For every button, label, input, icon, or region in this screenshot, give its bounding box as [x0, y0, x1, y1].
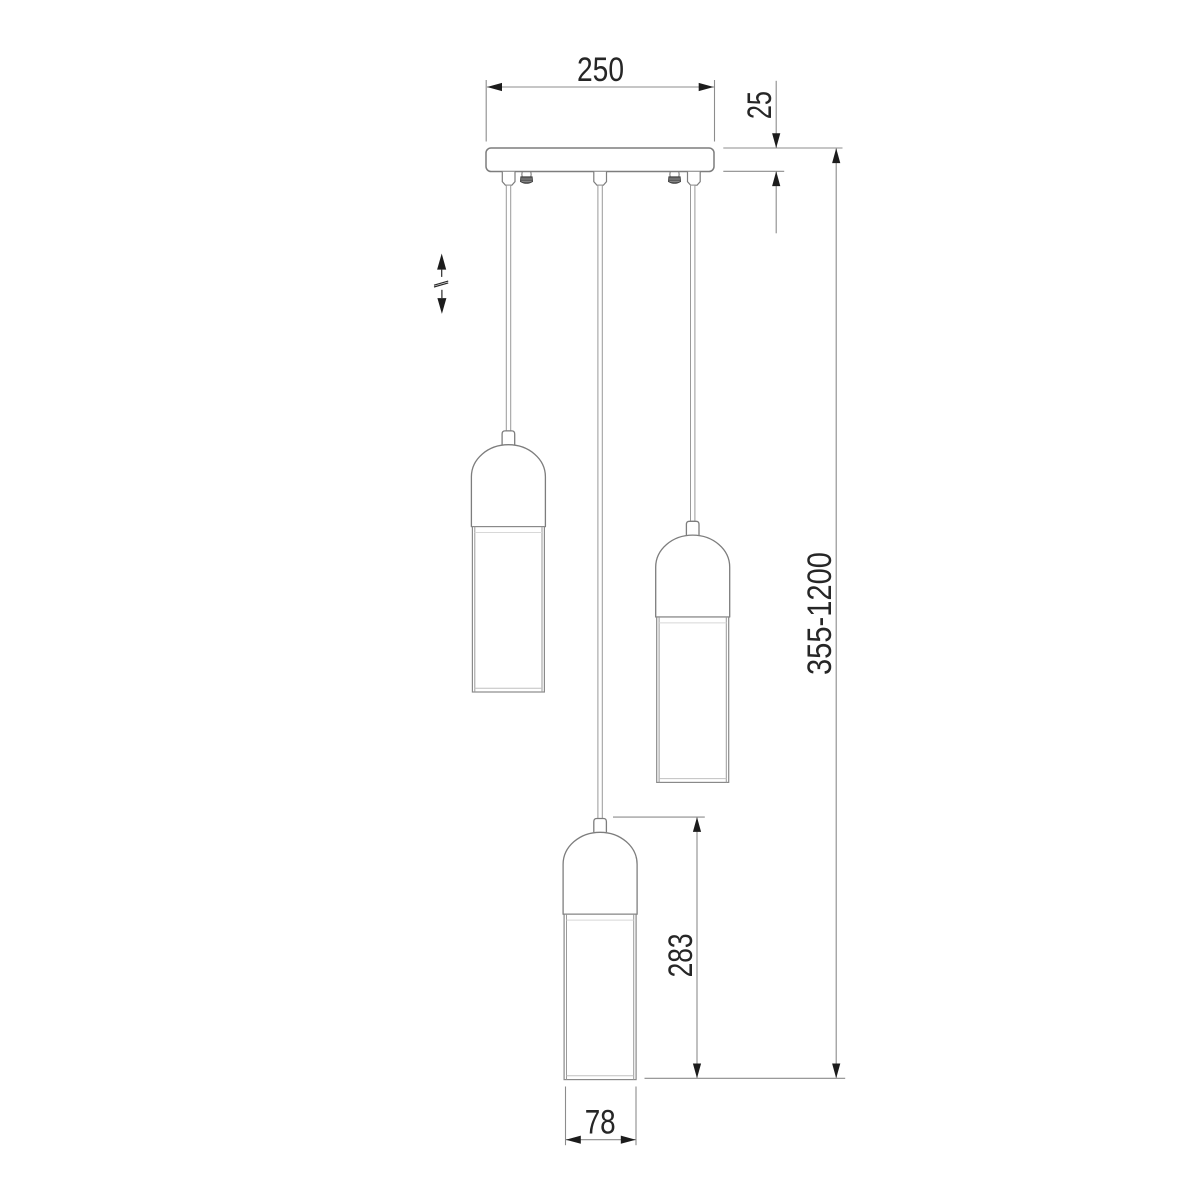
svg-text:78: 78: [585, 1103, 616, 1141]
svg-text:250: 250: [577, 51, 624, 89]
svg-text:25: 25: [741, 91, 779, 119]
svg-text:283: 283: [662, 933, 700, 977]
svg-text:355-1200: 355-1200: [801, 552, 839, 675]
